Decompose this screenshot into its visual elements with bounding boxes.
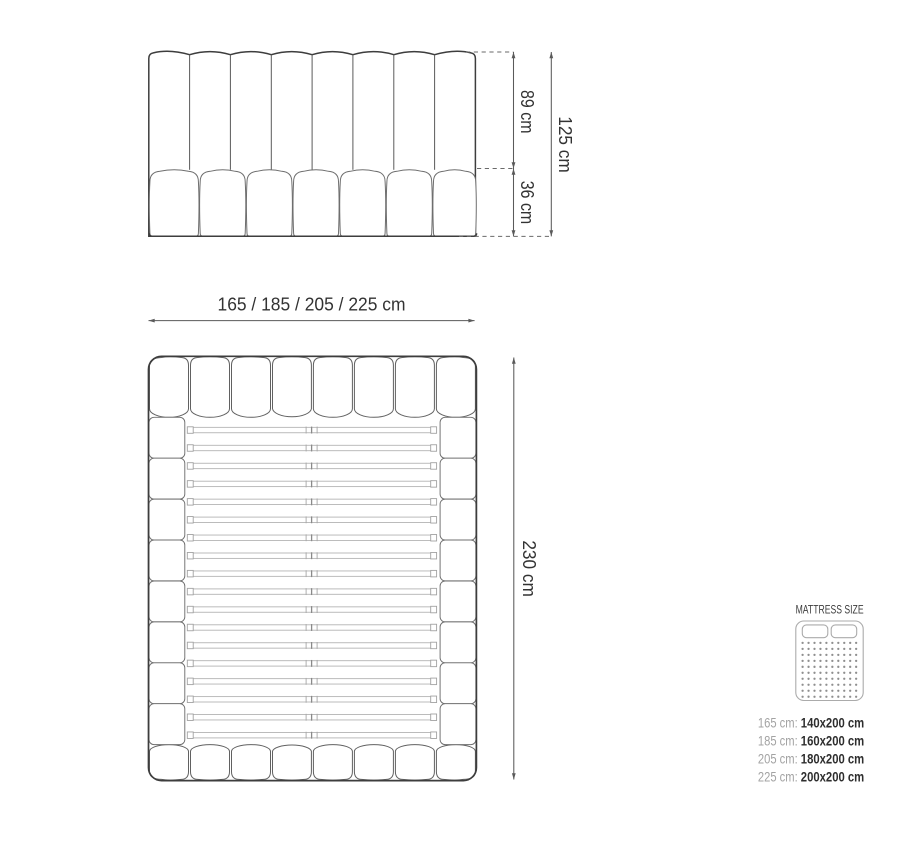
svg-text:180x200 cm: 180x200 cm <box>801 750 864 766</box>
svg-text:36 cm: 36 cm <box>517 181 537 225</box>
svg-text:89 cm: 89 cm <box>517 90 537 134</box>
svg-text:125 cm: 125 cm <box>555 116 575 173</box>
svg-text:185 cm:: 185 cm: <box>758 732 798 748</box>
svg-text:165 cm:: 165 cm: <box>758 714 798 730</box>
svg-text:140x200 cm: 140x200 cm <box>801 714 864 730</box>
svg-text:225 cm:: 225 cm: <box>758 768 798 784</box>
svg-text:165 / 185 / 205 / 225 cm: 165 / 185 / 205 / 225 cm <box>218 295 406 315</box>
svg-text:230 cm: 230 cm <box>519 540 539 597</box>
svg-text:160x200 cm: 160x200 cm <box>801 732 864 748</box>
svg-text:200x200 cm: 200x200 cm <box>801 768 864 784</box>
svg-text:205 cm:: 205 cm: <box>758 750 798 766</box>
svg-text:MATTRESS SIZE: MATTRESS SIZE <box>796 602 864 616</box>
